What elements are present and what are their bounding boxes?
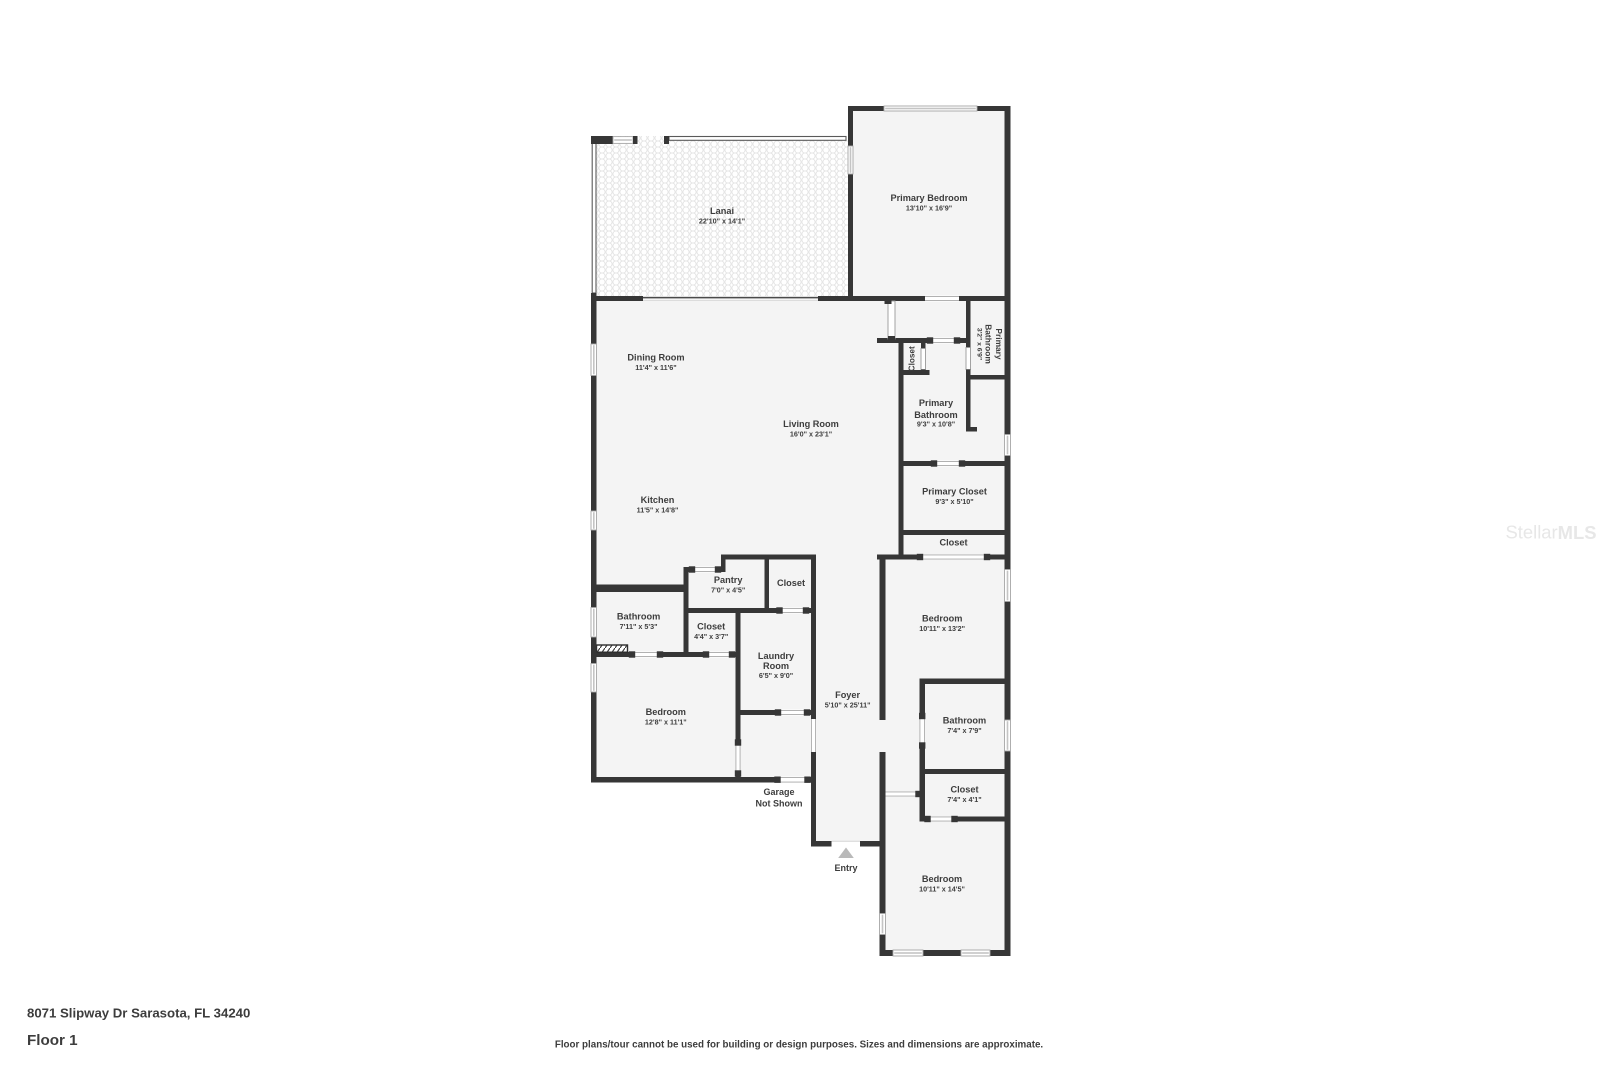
svg-text:Garage: Garage [763, 787, 794, 797]
svg-text:Primary Bedroom: Primary Bedroom [890, 193, 967, 203]
svg-text:Bedroom: Bedroom [922, 874, 962, 884]
svg-text:9'3" x 5'10": 9'3" x 5'10" [935, 497, 973, 506]
svg-text:Foyer: Foyer [835, 690, 860, 700]
svg-text:Bedroom: Bedroom [922, 613, 962, 623]
svg-text:Lanai: Lanai [710, 206, 734, 216]
svg-text:9'3" x 10'8": 9'3" x 10'8" [917, 420, 955, 429]
svg-text:Closet: Closet [697, 622, 725, 632]
svg-text:Primary: Primary [919, 398, 954, 408]
svg-text:Bathroom: Bathroom [943, 715, 986, 725]
svg-text:12'8" x 11'1": 12'8" x 11'1" [645, 718, 687, 727]
svg-text:Entry: Entry [834, 863, 857, 873]
svg-text:13'10" x 16'9": 13'10" x 16'9" [906, 203, 952, 212]
svg-text:11'5" x 14'8": 11'5" x 14'8" [637, 505, 679, 514]
svg-text:6'5" x 9'0": 6'5" x 9'0" [759, 671, 793, 680]
svg-text:7'4" x 4'1": 7'4" x 4'1" [947, 795, 981, 804]
svg-text:11'4" x 11'6": 11'4" x 11'6" [635, 363, 676, 372]
svg-text:7'11" x 5'3": 7'11" x 5'3" [620, 622, 658, 631]
svg-text:Kitchen: Kitchen [641, 495, 675, 505]
svg-text:16'0" x 23'1": 16'0" x 23'1" [790, 429, 832, 438]
svg-text:Not Shown: Not Shown [756, 799, 803, 809]
svg-text:Floor plans/tour cannot be use: Floor plans/tour cannot be used for buil… [555, 1040, 1044, 1051]
svg-text:Bedroom: Bedroom [646, 707, 686, 717]
svg-text:Closet: Closet [950, 784, 978, 794]
svg-text:10'11" x 14'5": 10'11" x 14'5" [919, 884, 965, 893]
svg-text:Closet: Closet [939, 538, 967, 548]
svg-text:Dining Room: Dining Room [627, 352, 684, 362]
svg-text:StellarMLS: StellarMLS [1506, 522, 1597, 543]
svg-text:7'0" x 4'5": 7'0" x 4'5" [711, 585, 745, 594]
svg-text:Room: Room [763, 661, 789, 671]
svg-text:22'10" x 14'1": 22'10" x 14'1" [699, 216, 745, 225]
svg-text:Bathroom: Bathroom [617, 611, 660, 621]
svg-text:Primary: Primary [994, 328, 1004, 360]
svg-text:Laundry: Laundry [758, 651, 795, 661]
svg-text:Bathroom: Bathroom [984, 324, 994, 364]
svg-text:Pantry: Pantry [714, 575, 743, 585]
svg-text:10'11" x 13'2": 10'11" x 13'2" [919, 624, 965, 633]
svg-text:Bathroom: Bathroom [914, 410, 957, 420]
svg-text:Closet: Closet [777, 578, 805, 588]
svg-text:3'2" x 6'9": 3'2" x 6'9" [976, 328, 983, 360]
svg-text:5'10" x 25'11": 5'10" x 25'11" [825, 700, 871, 709]
svg-text:Floor 1: Floor 1 [27, 1032, 78, 1049]
svg-text:8071 Slipway Dr Sarasota, FL 3: 8071 Slipway Dr Sarasota, FL 34240 [27, 1006, 250, 1021]
svg-text:4'4" x 3'7": 4'4" x 3'7" [694, 632, 728, 641]
svg-text:Closet: Closet [907, 346, 916, 371]
svg-text:Living Room: Living Room [783, 419, 839, 429]
svg-text:7'4" x 7'9": 7'4" x 7'9" [947, 726, 981, 735]
svg-text:Primary Closet: Primary Closet [922, 486, 987, 496]
